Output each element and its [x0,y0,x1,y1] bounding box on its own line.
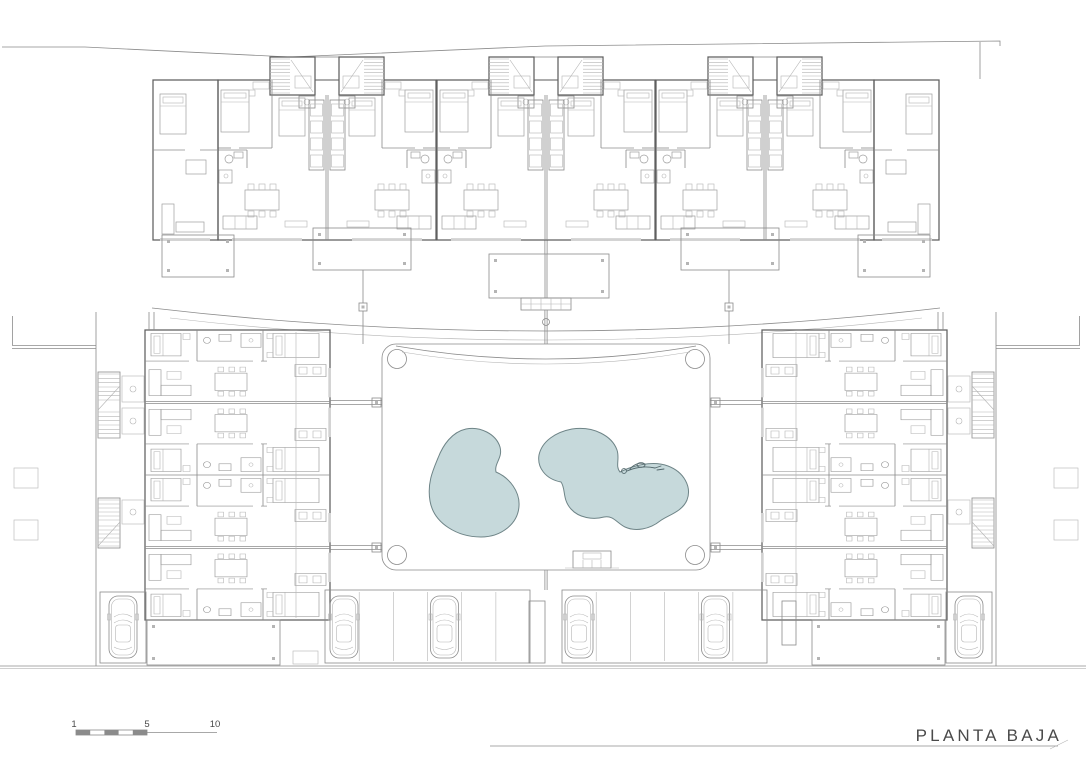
left-wing [12,312,382,666]
scale-label-1: 1 [71,719,76,730]
car [329,596,360,658]
architectural-drawing: 1 5 10 PLANTA BAJA [0,0,1086,768]
site-plan-drawing: 1 5 10 PLANTA BAJA [0,0,1086,768]
wing-apartment-unit [145,553,330,620]
plan-title: PLANTA BAJA [916,726,1062,745]
car [429,596,460,658]
top-row-right-end [725,80,939,344]
wing-apartment-unit [763,475,948,542]
walkways [152,240,940,590]
wing-apartment-unit [763,330,948,397]
courtyard [382,344,710,570]
car [700,596,731,658]
wing-apartment-unit [763,408,948,475]
pool-left [429,428,519,537]
top-building-row [218,57,874,240]
car [108,596,139,658]
parking [293,590,796,664]
right-wing [710,312,1080,666]
wing-apartment-unit [145,475,330,542]
wing-apartment-unit [763,553,948,620]
wing-apartment-unit [145,330,330,397]
plan-linework [0,41,1086,669]
scale-label-10: 10 [210,719,221,730]
pool-right [539,428,689,529]
car [954,596,985,658]
scale-bar: 1 5 10 [71,719,220,735]
scale-label-5: 5 [144,719,149,730]
wing-apartment-unit [145,408,330,475]
car [564,596,595,658]
pools [429,428,688,537]
top-row-left-end [153,80,367,344]
